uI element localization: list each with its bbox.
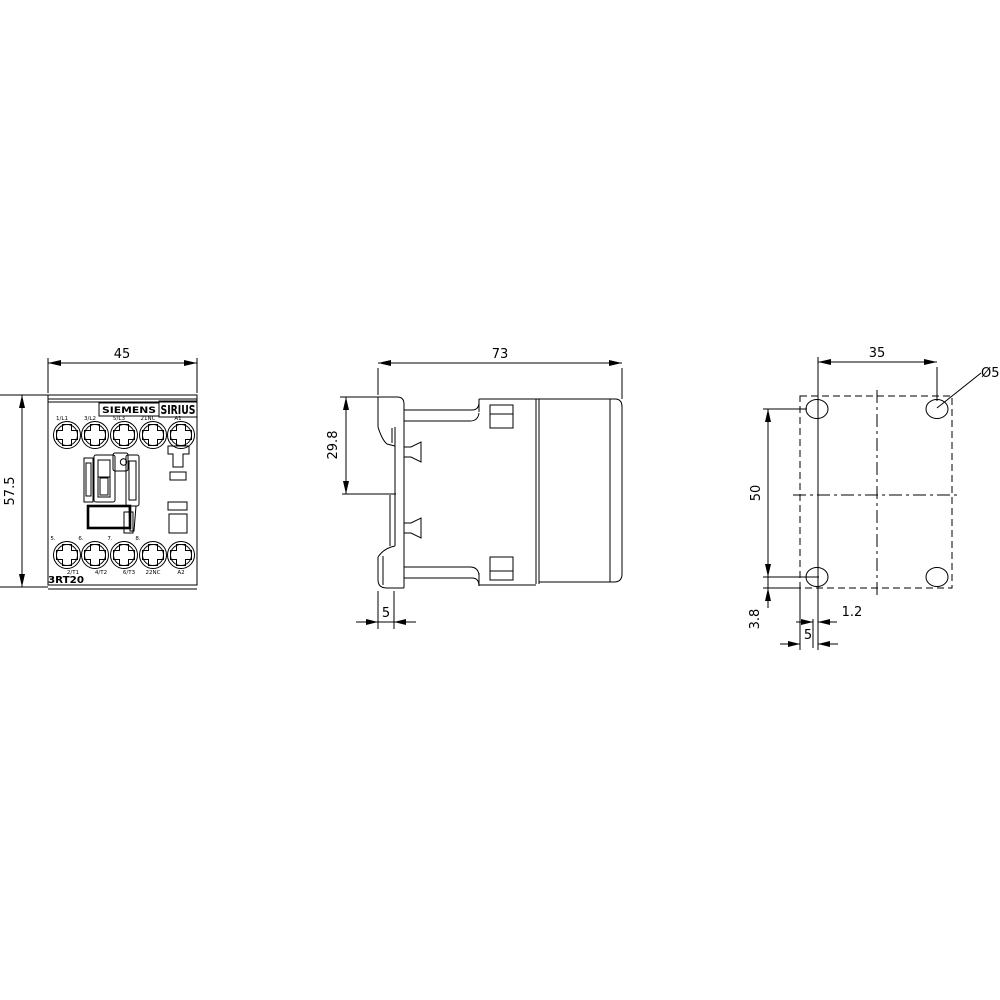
hole-spacing-h-value: 35: [869, 346, 886, 361]
terminal-label: A2: [177, 570, 184, 576]
model-label: 3RT20: [48, 575, 84, 586]
side-rail-value: 29.8: [326, 431, 341, 460]
terminal-label: 4/T2: [95, 570, 107, 576]
clamp-number: 5.: [50, 536, 55, 542]
series-label: SIRIUS: [161, 403, 196, 417]
technical-drawing: 45 57.5 SIEMENS SIRIUS 1/L1 3/L2 5/L3: [0, 0, 1000, 1000]
side-foot-value: 5: [382, 606, 390, 621]
front-height-value: 57.5: [3, 477, 18, 506]
brand-label: SIEMENS: [102, 406, 156, 416]
hole-diameter-value: Ø5: [981, 366, 1000, 381]
dimension-drawing-page: 45 57.5 SIEMENS SIRIUS 1/L1 3/L2 5/L3: [0, 0, 1000, 1000]
front-width-value: 45: [114, 347, 131, 362]
bottom-offset-value: 3.8: [748, 609, 763, 630]
terminal-label: 22NC: [146, 570, 161, 576]
terminal-label: 6/T3: [123, 570, 136, 576]
clamp-number: 8.: [135, 536, 140, 542]
clamp-number: 7.: [107, 536, 112, 542]
side-depth-value: 73: [492, 347, 509, 362]
clamp-number: 6.: [78, 536, 83, 542]
edge-offset-value: 5: [804, 628, 812, 643]
drawing-background: [0, 0, 1000, 1000]
hole-spacing-v-value: 50: [749, 485, 764, 502]
center-offset-value: 1.2: [842, 605, 863, 620]
